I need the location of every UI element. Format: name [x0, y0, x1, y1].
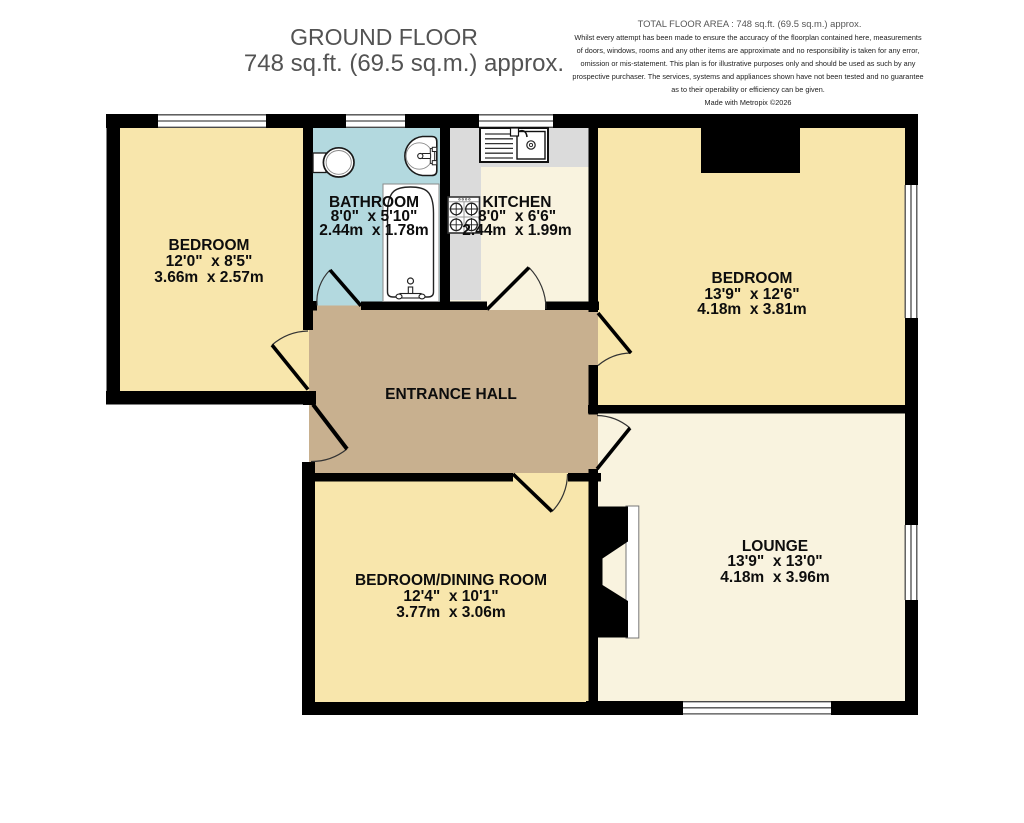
svg-text:12'0" x 8'5": 12'0" x 8'5": [166, 253, 253, 270]
svg-text:ENTRANCE HALL: ENTRANCE HALL: [385, 386, 517, 403]
svg-text:omission or mis-statement. Thi: omission or mis-statement. This plan is …: [581, 59, 916, 68]
svg-text:GROUND FLOOR: GROUND FLOOR: [290, 24, 478, 50]
svg-text:13'9" x 13'0": 13'9" x 13'0": [727, 553, 822, 570]
svg-text:prospective purchaser. The ser: prospective purchaser. The services, sys…: [572, 72, 923, 81]
svg-text:BEDROOM: BEDROOM: [169, 237, 250, 254]
svg-text:3.77m x 3.06m: 3.77m x 3.06m: [396, 604, 505, 621]
svg-text:2.44m x 1.78m: 2.44m x 1.78m: [319, 222, 428, 239]
svg-text:Made with Metropix ©2026: Made with Metropix ©2026: [705, 98, 792, 107]
svg-text:3.66m x 2.57m: 3.66m x 2.57m: [154, 269, 263, 286]
svg-text:2.44m x 1.99m: 2.44m x 1.99m: [462, 222, 571, 239]
svg-text:4.18m x 3.81m: 4.18m x 3.81m: [697, 301, 806, 318]
svg-text:as to their operability or eff: as to their operability or efficiency ca…: [671, 85, 825, 94]
svg-text:BEDROOM/DINING ROOM: BEDROOM/DINING ROOM: [355, 572, 547, 589]
svg-text:TOTAL FLOOR AREA : 748 sq.ft.: TOTAL FLOOR AREA : 748 sq.ft. (69.5 sq.m…: [638, 18, 862, 29]
svg-text:Whilst every attempt has been: Whilst every attempt has been made to en…: [574, 33, 922, 42]
svg-text:748 sq.ft. (69.5 sq.m.) approx: 748 sq.ft. (69.5 sq.m.) approx.: [244, 50, 564, 77]
svg-text:of doors, windows, rooms and a: of doors, windows, rooms and any other i…: [577, 46, 920, 55]
svg-text:4.18m x 3.96m: 4.18m x 3.96m: [720, 569, 829, 586]
svg-text:12'4" x 10'1": 12'4" x 10'1": [403, 588, 498, 605]
svg-text:BEDROOM: BEDROOM: [712, 270, 793, 287]
